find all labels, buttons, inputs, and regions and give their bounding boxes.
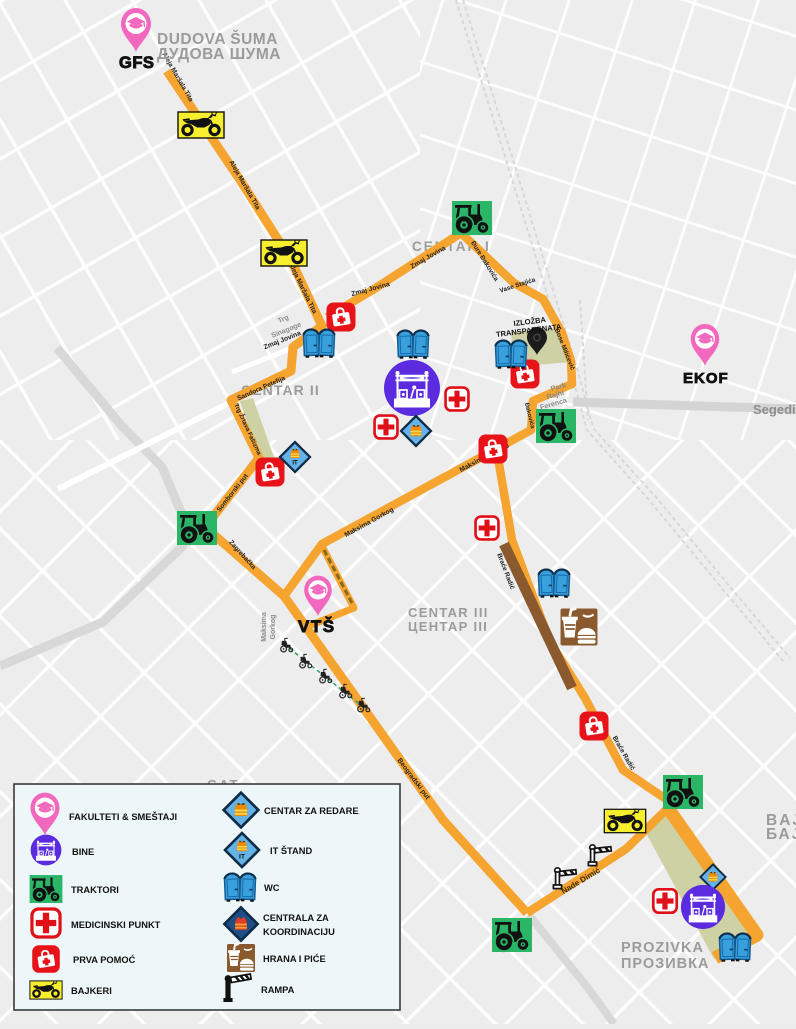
- svg-text:Maksima: Maksima: [261, 612, 268, 642]
- svg-text:RAMPA: RAMPA: [261, 985, 295, 995]
- svg-text:БАЈ: БАЈ: [766, 826, 796, 843]
- svg-text:CENTAR ZA REDARE: CENTAR ZA REDARE: [264, 806, 359, 816]
- svg-text:HRANA I PIĆE: HRANA I PIĆE: [263, 953, 326, 964]
- svg-text:ЦЕНТАР III: ЦЕНТАР III: [408, 619, 488, 634]
- svg-text:ДУДОВА ШУМА: ДУДОВА ШУМА: [157, 46, 281, 63]
- svg-text:IT ŠTAND: IT ŠTAND: [270, 845, 312, 856]
- svg-text:WC: WC: [264, 883, 280, 893]
- svg-text:CENTAR III: CENTAR III: [408, 605, 489, 620]
- svg-text:FAKULTETI & SMEŠTAJI: FAKULTETI & SMEŠTAJI: [69, 811, 177, 822]
- svg-text:CENTRALA ZA: CENTRALA ZA: [263, 913, 329, 923]
- svg-text:ПРОЗИВКА: ПРОЗИВКА: [621, 956, 709, 972]
- svg-text:PRVA POMOĆ: PRVA POMOĆ: [73, 954, 136, 965]
- svg-text:Gorkog: Gorkog: [270, 615, 277, 640]
- svg-text:GFS: GFS: [119, 54, 154, 72]
- svg-text:VTŠ: VTŠ: [298, 617, 336, 636]
- svg-text:BINE: BINE: [72, 847, 94, 857]
- svg-text:PROZIVKA: PROZIVKA: [621, 940, 704, 956]
- svg-text:TRAKTORI: TRAKTORI: [71, 885, 119, 895]
- svg-text:KOORDINACIJU: KOORDINACIJU: [263, 927, 335, 937]
- svg-text:BAJKERI: BAJKERI: [71, 986, 112, 996]
- svg-text:Segedinski put: Segedinski put: [753, 402, 796, 417]
- svg-text:EKOF: EKOF: [683, 370, 729, 387]
- svg-text:MEDICINSKI PUNKT: MEDICINSKI PUNKT: [71, 920, 161, 930]
